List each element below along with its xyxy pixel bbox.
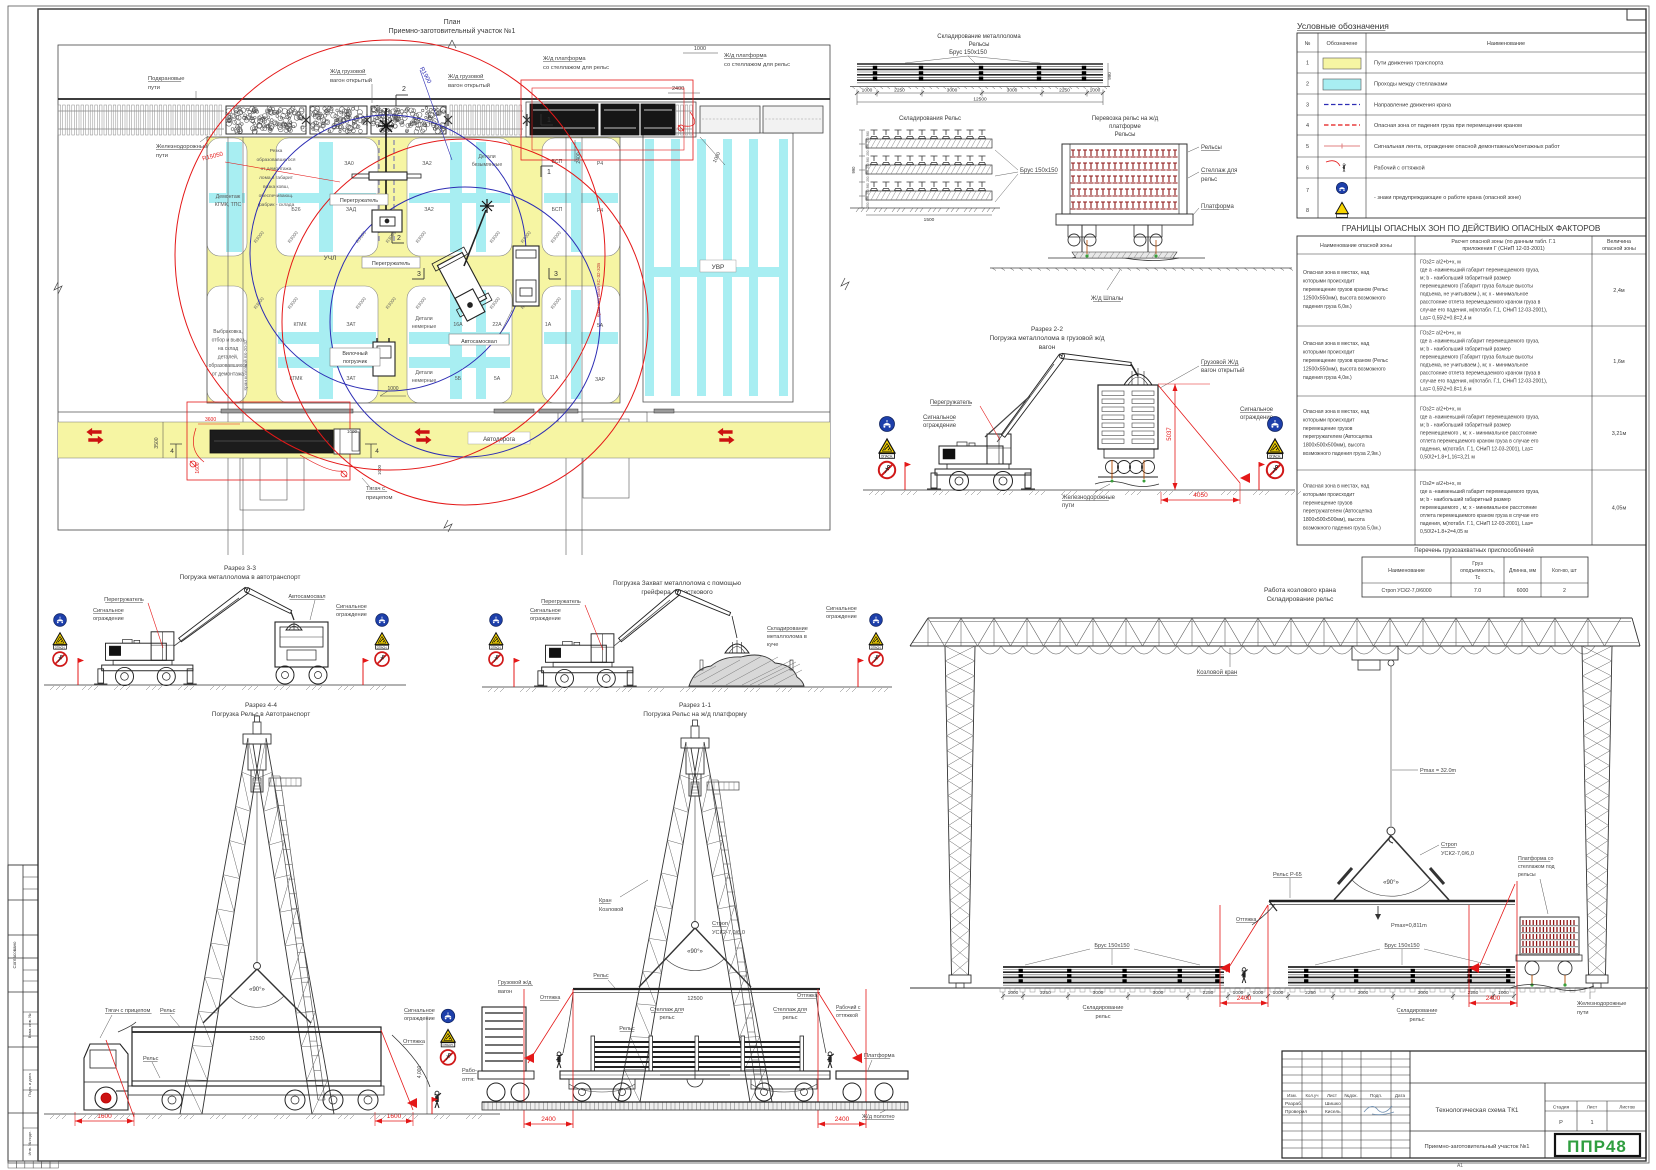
svg-text:возможного падения груза 2,9м.: возможного падения груза 2,9м.) <box>1303 451 1381 457</box>
svg-text:2250: 2250 <box>1305 990 1316 996</box>
svg-text:Изм.: Изм. <box>1287 1093 1297 1098</box>
svg-text:3: 3 <box>417 271 421 278</box>
svg-text:Перегружатель: Перегружатель <box>104 597 144 603</box>
svg-text:1А: 1А <box>545 322 552 328</box>
svg-text:12500х550мм), высота возможног: 12500х550мм), высота возможного <box>1303 366 1386 372</box>
svg-text:Подкрановые: Подкрановые <box>148 76 185 82</box>
svg-text:Брус 150х150: Брус 150х150 <box>1094 943 1129 949</box>
svg-text:Резка: Резка <box>270 148 283 154</box>
svg-text:платформе: платформе <box>1109 124 1141 130</box>
svg-text:Вилочный: Вилочный <box>342 350 367 357</box>
svg-text:ППР48: ППР48 <box>1567 1137 1627 1156</box>
svg-text:Взам. инв. №: Взам. инв. № <box>27 1014 32 1039</box>
svg-text:1: 1 <box>547 117 551 124</box>
svg-text:«90°»: «90°» <box>249 987 265 993</box>
svg-text:1000: 1000 <box>1008 990 1019 996</box>
svg-text:Строп: Строп <box>712 921 728 927</box>
svg-text:ограждение: ограждение <box>93 616 124 622</box>
svg-text:Платформа со: Платформа со <box>1518 856 1553 862</box>
svg-text:случае его падения, м(потабл.: случае его падения, м(потабл. Г.1, СНиП … <box>1420 379 1547 385</box>
svg-text:6: 6 <box>1306 166 1309 172</box>
svg-text:безымянные: безымянные <box>472 162 503 168</box>
svg-text:Стеллаж для: Стеллаж для <box>773 1007 807 1013</box>
svg-text:Платформа: Платформа <box>864 1053 896 1059</box>
svg-text:3000: 3000 <box>947 88 958 94</box>
svg-text:Разрез 2-2: Разрез 2-2 <box>1031 326 1063 333</box>
svg-text:Перегружатель: Перегружатель <box>541 599 581 605</box>
svg-text:- знаки предупреждающие о рабо: - знаки предупреждающие о работе крана (… <box>1374 194 1521 201</box>
svg-text:расстояние отлета перемещаемог: расстояние отлета перемещаемого краном г… <box>1420 300 1541 306</box>
svg-text:Подп. и дата: Подп. и дата <box>27 1072 32 1096</box>
svg-text:оття:: оття: <box>462 1077 475 1083</box>
svg-text:«90°»: «90°» <box>687 949 703 955</box>
svg-text:Приемно-заготовительный участо: Приемно-заготовительный участок №1 <box>1425 1143 1530 1150</box>
svg-text:8: 8 <box>1306 208 1309 214</box>
svg-text:Складирование: Складирование <box>1397 1008 1438 1014</box>
svg-text:Наименование опасной зоны: Наименование опасной зоны <box>1320 242 1392 249</box>
svg-text:ограждение: ограждение <box>826 614 857 620</box>
svg-text:Листов: Листов <box>1619 1105 1635 1111</box>
svg-text:ГРАНИЦЫ ОПАСНЫХ ЗОН ПО ДЕЙСТВИ: ГРАНИЦЫ ОПАСНЫХ ЗОН ПО ДЕЙСТВИЮ ОПАСНЫХ … <box>1342 222 1601 233</box>
svg-text:2: 2 <box>397 235 401 242</box>
svg-text:4050: 4050 <box>1193 492 1208 499</box>
svg-text:рельс: рельс <box>1201 177 1217 183</box>
svg-text:250 380: 250 380 <box>866 183 870 195</box>
svg-text:Рельс: Рельс <box>143 1056 159 1062</box>
svg-text:перемещение грузов: перемещение грузов <box>1303 426 1353 432</box>
svg-text:пути: пути <box>156 153 168 159</box>
svg-text:пути: пути <box>1062 503 1074 509</box>
svg-text:Погрузка Захват металлолома с: Погрузка Захват металлолома с помощью <box>613 580 741 587</box>
svg-text:которыми происходит: которыми происходит <box>1303 279 1355 285</box>
svg-text:Разрез 3-3: Разрез 3-3 <box>224 565 256 572</box>
svg-text:12500: 12500 <box>249 1036 264 1042</box>
svg-text:250 380: 250 380 <box>866 144 870 156</box>
svg-text:3600: 3600 <box>205 417 216 423</box>
svg-text:Сигнальное: Сигнальное <box>93 608 124 614</box>
svg-text:ГОз2= а\2+b+х, м: ГОз2= а\2+b+х, м <box>1420 481 1461 487</box>
svg-text:Рельс: Рельс <box>619 1026 635 1032</box>
svg-text:перемещение грузов краном (Рел: перемещение грузов краном (Рельс <box>1303 358 1388 364</box>
svg-text:Складирование рельс: Складирование рельс <box>1267 596 1335 603</box>
svg-text:Брус 150х150: Брус 150х150 <box>949 50 987 56</box>
svg-text:перемещение грузов: перемещение грузов <box>1303 500 1353 506</box>
svg-text:Перечень грузозахватных приспо: Перечень грузозахватных приспособлений <box>1414 547 1534 554</box>
svg-text:Железнодорожные: Железнодорожные <box>1577 1001 1626 1007</box>
svg-text:перегружателем (Автосцепка: перегружателем (Автосцепка <box>1303 509 1372 515</box>
svg-text:вагон открытый: вагон открытый <box>330 77 372 84</box>
svg-text:оподъемность,: оподъемность, <box>1460 568 1495 574</box>
svg-text:ограждение: ограждение <box>336 612 367 618</box>
svg-text:металлолома в: металлолома в <box>767 634 807 640</box>
svg-text:Рельсы: Рельсы <box>969 42 990 48</box>
svg-text:Сигнальное: Сигнальное <box>530 608 561 614</box>
svg-text:Складирование: Складирование <box>1083 1005 1124 1011</box>
svg-text:1000: 1000 <box>1090 88 1101 94</box>
svg-text:Ж/д грузовой: Ж/д грузовой <box>330 68 365 75</box>
svg-text:Сигнальное: Сигнальное <box>1240 407 1274 413</box>
svg-text:ЗАТ: ЗАТ <box>346 376 356 382</box>
svg-text:ЗА0: ЗА0 <box>344 161 354 167</box>
svg-text:Автосамосвал: Автосамосвал <box>461 339 497 345</box>
svg-text:вагон: вагон <box>1039 344 1056 351</box>
svg-text:1000: 1000 <box>1253 990 1264 996</box>
svg-text:Лист: Лист <box>1327 1093 1338 1098</box>
svg-text:4: 4 <box>170 448 174 455</box>
svg-text:перемещаемого (Габарит груза б: перемещаемого (Габарит груза больше высо… <box>1420 355 1533 361</box>
svg-text:Опасная зона в местах, над: Опасная зона в местах, над <box>1303 409 1369 415</box>
svg-text:падения груза 6,0м.): падения груза 6,0м.) <box>1303 304 1352 310</box>
svg-text:2250: 2250 <box>894 88 905 94</box>
svg-text:Технологическая схема ТК1: Технологическая схема ТК1 <box>1436 1107 1519 1114</box>
svg-text:Ж/д полотно: Ж/д полотно <box>862 1114 895 1120</box>
svg-text:Рельсы: Рельсы <box>1201 145 1222 151</box>
svg-text:5: 5 <box>1306 144 1309 150</box>
svg-text:Погрузка Рельс на ж/д платформ: Погрузка Рельс на ж/д платформу <box>643 711 747 718</box>
svg-text:Оттяжка: Оттяжка <box>797 993 817 999</box>
svg-text:3000: 3000 <box>1358 990 1369 996</box>
svg-text:лома в габарит: лома в габарит <box>259 175 294 181</box>
svg-text:12500: 12500 <box>973 97 987 103</box>
svg-text:Погрузка металлолома в автотра: Погрузка металлолома в автотранспорт <box>180 574 301 581</box>
svg-text:3000: 3000 <box>1153 990 1164 996</box>
svg-text:от демонтажа: от демонтажа <box>261 167 292 172</box>
svg-text:перемещение грузов краном (Рел: перемещение грузов краном (Рельс <box>1303 287 1388 293</box>
svg-text:План: План <box>444 19 461 26</box>
svg-text:подъема, не учитываем.), м; х: подъема, не учитываем.), м; х - минималь… <box>1420 292 1528 298</box>
svg-text:3000: 3000 <box>1007 88 1018 94</box>
svg-text:1000: 1000 <box>694 46 706 52</box>
svg-text:Кран козловой КК-20-32: Кран козловой КК-20-32 <box>242 339 248 390</box>
svg-text:со стеллажом для рельс: со стеллажом для рельс <box>543 65 609 71</box>
svg-text:1000: 1000 <box>1273 990 1284 996</box>
svg-text:2400: 2400 <box>576 152 582 163</box>
svg-text:Опасная зона в местах, над: Опасная зона в местах, над <box>1303 484 1369 490</box>
svg-text:Разрез 1-1: Разрез 1-1 <box>679 702 711 709</box>
svg-text:1000: 1000 <box>387 386 398 392</box>
svg-text:А1: А1 <box>1457 1163 1463 1169</box>
svg-text:Платформа: Платформа <box>1201 204 1235 210</box>
svg-text:Оттяжка: Оттяжка <box>1236 917 1256 923</box>
svg-text:Наименование: Наименование <box>1388 568 1425 574</box>
svg-text:2,4м: 2,4м <box>1613 288 1625 294</box>
svg-text:УЧЛ: УЧЛ <box>324 255 337 262</box>
svg-text:ГОз2= а\2+b+х, м: ГОз2= а\2+b+х, м <box>1420 407 1461 413</box>
svg-text:7: 7 <box>1306 188 1309 194</box>
svg-text:Брус 150х150: Брус 150х150 <box>1020 168 1058 174</box>
svg-text:5А: 5А <box>494 376 501 382</box>
svg-text:БСП: БСП <box>552 207 563 213</box>
svg-text:вагон открытый: вагон открытый <box>1201 367 1244 374</box>
svg-text:Оттяжка: Оттяжка <box>403 1039 426 1045</box>
svg-text:Автосамосвал: Автосамосвал <box>288 594 325 600</box>
svg-text:рельс: рельс <box>782 1015 797 1021</box>
svg-text:Рельсы: Рельсы <box>1115 132 1136 138</box>
svg-text:рельс: рельс <box>1409 1017 1424 1023</box>
svg-text:2250: 2250 <box>1040 990 1051 996</box>
svg-text:1000: 1000 <box>862 88 873 94</box>
svg-text:Грузовой Ж/д: Грузовой Ж/д <box>1201 359 1239 366</box>
svg-text:3500: 3500 <box>154 437 160 448</box>
svg-text:падения груза 4,0м.): падения груза 4,0м.) <box>1303 375 1352 381</box>
svg-text:№: № <box>1305 41 1311 47</box>
svg-text:11А: 11А <box>550 375 559 381</box>
svg-text:рельс: рельс <box>659 1015 674 1021</box>
svg-text:расстояние отлета перемещаемог: расстояние отлета перемещаемого краном г… <box>1420 371 1541 377</box>
svg-text:Сигнальное: Сигнальное <box>826 606 857 612</box>
svg-text:оттяжкой: оттяжкой <box>836 1012 858 1019</box>
svg-text:Перевозка рельс на ж/д: Перевозка рельс на ж/д <box>1092 116 1159 122</box>
svg-text:Длинна, мм: Длинна, мм <box>1509 568 1537 574</box>
svg-text:Пути движения транспорта: Пути движения транспорта <box>1374 61 1444 67</box>
svg-text:Инв. № подл.: Инв. № подл. <box>27 1131 32 1156</box>
svg-text:Согласовано: Согласовано <box>12 941 17 969</box>
svg-text:ограждение: ограждение <box>404 1016 435 1022</box>
svg-text:Рабочий с оттяжкой: Рабочий с оттяжкой <box>1374 165 1425 172</box>
svg-text:12500х550мм), высота возможног: 12500х550мм), высота возможного <box>1303 295 1386 301</box>
svg-text:Рабо-: Рабо- <box>462 1068 477 1074</box>
svg-text:0,50\2+1.8+2=4,05 м: 0,50\2+1.8+2=4,05 м <box>1420 529 1468 535</box>
svg-text:Железнодорожные: Железнодорожные <box>156 144 207 150</box>
svg-text:990: 990 <box>1107 72 1112 80</box>
svg-text:1500: 1500 <box>924 217 935 223</box>
svg-text:опасной зоны: опасной зоны <box>1602 245 1636 252</box>
svg-text:возможного падения груза 5,0м.: возможного падения груза 5,0м.) <box>1303 526 1381 532</box>
svg-text:2: 2 <box>1306 82 1309 88</box>
svg-text:Козловой кран: Козловой кран <box>1197 669 1237 676</box>
svg-text:падения, м(потабл. Г.1, СНиП 1: падения, м(потабл. Г.1, СНиП 12-03-2001)… <box>1420 521 1533 527</box>
svg-text:вагон: вагон <box>498 989 512 995</box>
svg-text:22А: 22А <box>492 322 502 328</box>
svg-text:прицепом: прицепом <box>366 495 392 501</box>
svg-text:3000: 3000 <box>1093 990 1104 996</box>
svg-text:стеллажом под: стеллажом под <box>1518 864 1555 870</box>
svg-text:Опасная зона в местах, над: Опасная зона в местах, над <box>1303 341 1369 347</box>
svg-text:2250: 2250 <box>1059 88 1070 94</box>
svg-text:Разраб.: Разраб. <box>1285 1101 1302 1107</box>
svg-text:Рельс Р-65: Рельс Р-65 <box>1273 872 1302 878</box>
svg-text:1: 1 <box>1590 1120 1593 1126</box>
svg-text:Перегружатель: Перегружатель <box>930 400 973 406</box>
svg-text:Детали: Детали <box>415 370 432 376</box>
svg-text:которыми происходит: которыми происходит <box>1303 492 1355 498</box>
svg-text:5Б: 5Б <box>455 376 462 382</box>
svg-text:16А: 16А <box>453 322 463 328</box>
svg-text:2: 2 <box>1563 588 1566 594</box>
svg-text:250 380: 250 380 <box>866 170 870 182</box>
svg-text:м; b - наибольший габаритный р: м; b - наибольший габаритный размер <box>1420 346 1511 353</box>
svg-text:3000: 3000 <box>1418 990 1429 996</box>
svg-text:Сигнальная лента, ограждение о: Сигнальная лента, ограждение опасной дем… <box>1374 143 1560 150</box>
svg-text:2400: 2400 <box>672 86 684 92</box>
svg-text:немерные: немерные <box>412 324 437 330</box>
svg-text:1: 1 <box>1306 61 1309 67</box>
svg-text:Перегружатель: Перегружатель <box>372 261 410 267</box>
svg-text:Складирование: Складирование <box>767 626 808 632</box>
svg-text:Складирование металлолома: Складирование металлолома <box>937 34 1021 40</box>
svg-text:образовавшегося: образовавшегося <box>256 157 295 163</box>
svg-text:где а -наименьший габарит пере: где а -наименьший габарит перемещаемого … <box>1420 338 1539 345</box>
svg-text:12500: 12500 <box>687 996 702 1002</box>
svg-text:2400: 2400 <box>1237 995 1252 1002</box>
svg-text:Строп УСК2-7,0/6000: Строп УСК2-7,0/6000 <box>1381 588 1431 594</box>
svg-text:Ж/д Шпалы: Ж/д Шпалы <box>1091 296 1123 302</box>
svg-text:Кол-во, шт: Кол-во, шт <box>1552 568 1577 574</box>
svg-text:7.0: 7.0 <box>1474 588 1481 594</box>
svg-text:погрузчик: погрузчик <box>343 359 368 365</box>
svg-text:Оттяжка: Оттяжка <box>540 995 560 1001</box>
svg-text:УСК2-7,0/6,0: УСК2-7,0/6,0 <box>712 930 745 936</box>
svg-text:Шишко: Шишко <box>1325 1101 1341 1107</box>
svg-text:Стеллаж для: Стеллаж для <box>650 1007 684 1013</box>
svg-text:ГОз2= а\2+b+х, м: ГОз2= а\2+b+х, м <box>1420 260 1461 266</box>
svg-text:Кол.уч: Кол.уч <box>1306 1093 1319 1098</box>
svg-text:4: 4 <box>375 448 379 455</box>
svg-text:4,05м: 4,05м <box>1612 506 1627 512</box>
svg-text:Lаз= 0,55\2+0.8=1,6 м: Lаз= 0,55\2+0.8=1,6 м <box>1420 387 1472 393</box>
svg-text:3,21м: 3,21м <box>1612 431 1627 437</box>
svg-text:Детали: Детали <box>415 316 432 322</box>
svg-text:приложения Г (СНиП 12-03-2001): приложения Г (СНиП 12-03-2001) <box>1462 246 1545 252</box>
svg-text:1000: 1000 <box>347 429 358 434</box>
svg-text:Сигнальное: Сигнальное <box>404 1008 435 1014</box>
svg-text:2400: 2400 <box>835 1116 850 1123</box>
svg-text:ЗА2: ЗА2 <box>422 161 432 167</box>
svg-text:Кран: Кран <box>599 898 612 904</box>
svg-text:подъема, не учитываем.), м; х: подъема, не учитываем.), м; х - минималь… <box>1420 363 1528 369</box>
svg-text:Стеллаж для: Стеллаж для <box>1201 168 1237 174</box>
svg-text:1800х500х500мм), высота: 1800х500х500мм), высота <box>1303 517 1365 523</box>
svg-text:где а -наименьший габарит пере: где а -наименьший габарит перемещаемого … <box>1420 267 1539 274</box>
svg-text:2: 2 <box>402 86 406 93</box>
svg-text:Тягач с: Тягач с <box>366 486 385 492</box>
svg-text:Складирования Рельс: Складирования Рельс <box>899 116 961 122</box>
svg-text:Условные обозначения: Условные обозначения <box>1297 21 1389 31</box>
svg-text:которыми происходит: которыми происходит <box>1303 417 1355 423</box>
svg-text:3: 3 <box>554 271 558 278</box>
svg-text:Рельс: Рельс <box>160 1008 176 1014</box>
svg-text:со стеллажом для рельс: со стеллажом для рельс <box>724 62 790 68</box>
svg-text:пути: пути <box>1577 1010 1589 1016</box>
svg-text:Лист: Лист <box>1587 1105 1598 1111</box>
svg-text:ЗАТ: ЗАТ <box>346 322 356 328</box>
svg-text:м; b - наибольший габаритный р: м; b - наибольший габаритный размер <box>1420 275 1511 282</box>
svg-text:перегружателем (Автосцепка: перегружателем (Автосцепка <box>1303 434 1372 440</box>
svg-text:где а -наименьший габарит пере: где а -наименьший габарит перемещаемого … <box>1420 488 1539 495</box>
svg-text:отлета перемещаемого краном гр: отлета перемещаемого краном груза в случ… <box>1420 513 1539 519</box>
svg-text:где а -наименьший габарит пере: где а -наименьший габарит перемещаемого … <box>1420 414 1539 421</box>
svg-text:Lаз= 0,55\2+0.8=2,4 м: Lаз= 0,55\2+0.8=2,4 м <box>1420 316 1472 322</box>
svg-text:Груз: Груз <box>1472 561 1483 567</box>
svg-text:Подп.: Подп. <box>1370 1093 1382 1098</box>
svg-text:Сигнальное: Сигнальное <box>923 415 957 421</box>
svg-text:№док.: №док. <box>1344 1093 1357 1098</box>
svg-text:Pmax = 32.0m: Pmax = 32.0m <box>1420 768 1457 774</box>
svg-text:вагон открытый: вагон открытый <box>448 82 490 89</box>
svg-text:ГОз2= а\2+b+х, м: ГОз2= а\2+b+х, м <box>1420 331 1461 337</box>
svg-text:3: 3 <box>1306 103 1309 109</box>
svg-text:Рельс: Рельс <box>593 973 609 979</box>
svg-text:990: 990 <box>851 166 856 174</box>
svg-text:Железнодорожные: Железнодорожные <box>1062 495 1116 501</box>
svg-text:4: 4 <box>1306 123 1309 129</box>
svg-text:Направление движения крана: Направление движения крана <box>1374 103 1452 109</box>
svg-text:Грузовой ж/д: Грузовой ж/д <box>498 979 532 986</box>
svg-text:2400: 2400 <box>1486 995 1501 1002</box>
svg-text:Опасная зона от падения груза: Опасная зона от падения груза при переме… <box>1374 123 1522 129</box>
svg-text:падения, м(потабл. Г.1, СНиП 1: падения, м(потабл. Г.1, СНиП 12-03-2001)… <box>1420 447 1533 453</box>
svg-text:Р: Р <box>1559 1120 1563 1126</box>
svg-text:1,6м: 1,6м <box>1613 359 1625 365</box>
svg-text:6000: 6000 <box>1517 588 1529 594</box>
svg-text:КГМК: КГМК <box>293 322 306 328</box>
svg-text:пути: пути <box>148 85 160 91</box>
svg-text:Перегружатель: Перегружатель <box>340 198 378 204</box>
svg-text:УВР: УВР <box>712 264 725 271</box>
svg-text:ЗАД: ЗАД <box>346 207 357 213</box>
svg-text:случае его падения, м(потабл.: случае его падения, м(потабл. Г.1, СНиП … <box>1420 308 1547 314</box>
svg-text:Сигнальное: Сигнальное <box>336 604 367 610</box>
svg-text:м; b - наибольший габаритный р: м; b - наибольший габаритный размер <box>1420 496 1511 503</box>
svg-text:Проверил: Проверил <box>1285 1109 1307 1115</box>
svg-text:УСК2-7,0/6,0: УСК2-7,0/6,0 <box>1441 851 1474 857</box>
svg-text:Проходы между стеллажами: Проходы между стеллажами <box>1374 82 1447 88</box>
svg-text:1: 1 <box>547 169 551 176</box>
svg-text:Ж/д платформа: Ж/д платформа <box>724 53 767 59</box>
svg-text:Брус 150х150: Брус 150х150 <box>1384 943 1419 949</box>
svg-text:Р4: Р4 <box>597 161 603 167</box>
svg-text:Козловой: Козловой <box>599 906 623 913</box>
svg-text:Наименование: Наименование <box>1487 41 1525 47</box>
svg-text:Работа козлового крана: Работа козлового крана <box>1264 586 1336 594</box>
svg-text:Тягач с прицепом: Тягач с прицепом <box>105 1008 151 1014</box>
svg-text:Разрез 4-4: Разрез 4-4 <box>245 702 277 709</box>
svg-text:Стадия: Стадия <box>1553 1105 1570 1111</box>
svg-text:рельсы: рельсы <box>1518 872 1536 878</box>
svg-text:ограждение: ограждение <box>923 423 957 429</box>
svg-text:Величина: Величина <box>1607 239 1631 245</box>
svg-text:1800х500х500мм), высота: 1800х500х500мм), высота <box>1303 443 1365 449</box>
svg-text:2250: 2250 <box>1203 990 1214 996</box>
svg-text:перемещаемого (Габарит груза б: перемещаемого (Габарит груза больше высо… <box>1420 284 1533 290</box>
svg-text:фабрик - склада: фабрик - склада <box>258 202 295 208</box>
svg-text:куче: куче <box>767 642 778 648</box>
svg-text:Тс: Тс <box>1475 575 1481 581</box>
svg-text:250 380: 250 380 <box>866 196 870 208</box>
svg-text:отлета перемещаемого краном гр: отлета перемещаемого краном груза в случ… <box>1420 439 1539 445</box>
svg-text:Погрузка металлолома в грузово: Погрузка металлолома в грузовой ж/д <box>989 334 1104 342</box>
svg-text:ЗА2: ЗА2 <box>424 207 434 213</box>
svg-text:перемещаемого , м; х - минимал: перемещаемого , м; х - минимальное расст… <box>1420 431 1537 437</box>
svg-text:Опасная зона в местах, над: Опасная зона в местах, над <box>1303 270 1369 276</box>
svg-text:Расчет опасной зоны (по данным: Расчет опасной зоны (по данным табл. Г.1 <box>1451 238 1555 245</box>
svg-text:перемещаемого , м; х - минимал: перемещаемого , м; х - минимальное расст… <box>1420 505 1537 511</box>
svg-text:Рабочий с: Рабочий с <box>836 1004 861 1011</box>
svg-text:250 380: 250 380 <box>866 157 870 169</box>
svg-text:0,50\2+1.8+1,16=3,21 м: 0,50\2+1.8+1,16=3,21 м <box>1420 455 1475 461</box>
svg-text:рельс: рельс <box>1095 1014 1110 1020</box>
svg-text:отбор и вывоз: отбор и вывоз <box>212 338 246 344</box>
svg-text:ЗАР: ЗАР <box>595 377 606 383</box>
svg-text:Pmax=0,811m: Pmax=0,811m <box>1391 923 1427 929</box>
svg-text:Ж/д платформа: Ж/д платформа <box>543 56 586 62</box>
svg-text:5037: 5037 <box>1167 427 1173 441</box>
svg-text:Кисель: Кисель <box>1325 1109 1341 1115</box>
svg-text:Строп: Строп <box>1441 842 1457 848</box>
svg-text:Приемно-заготовительный участо: Приемно-заготовительный участок №1 <box>389 27 516 35</box>
svg-text:ограждение: ограждение <box>530 616 561 622</box>
svg-text:250 380: 250 380 <box>866 131 870 143</box>
